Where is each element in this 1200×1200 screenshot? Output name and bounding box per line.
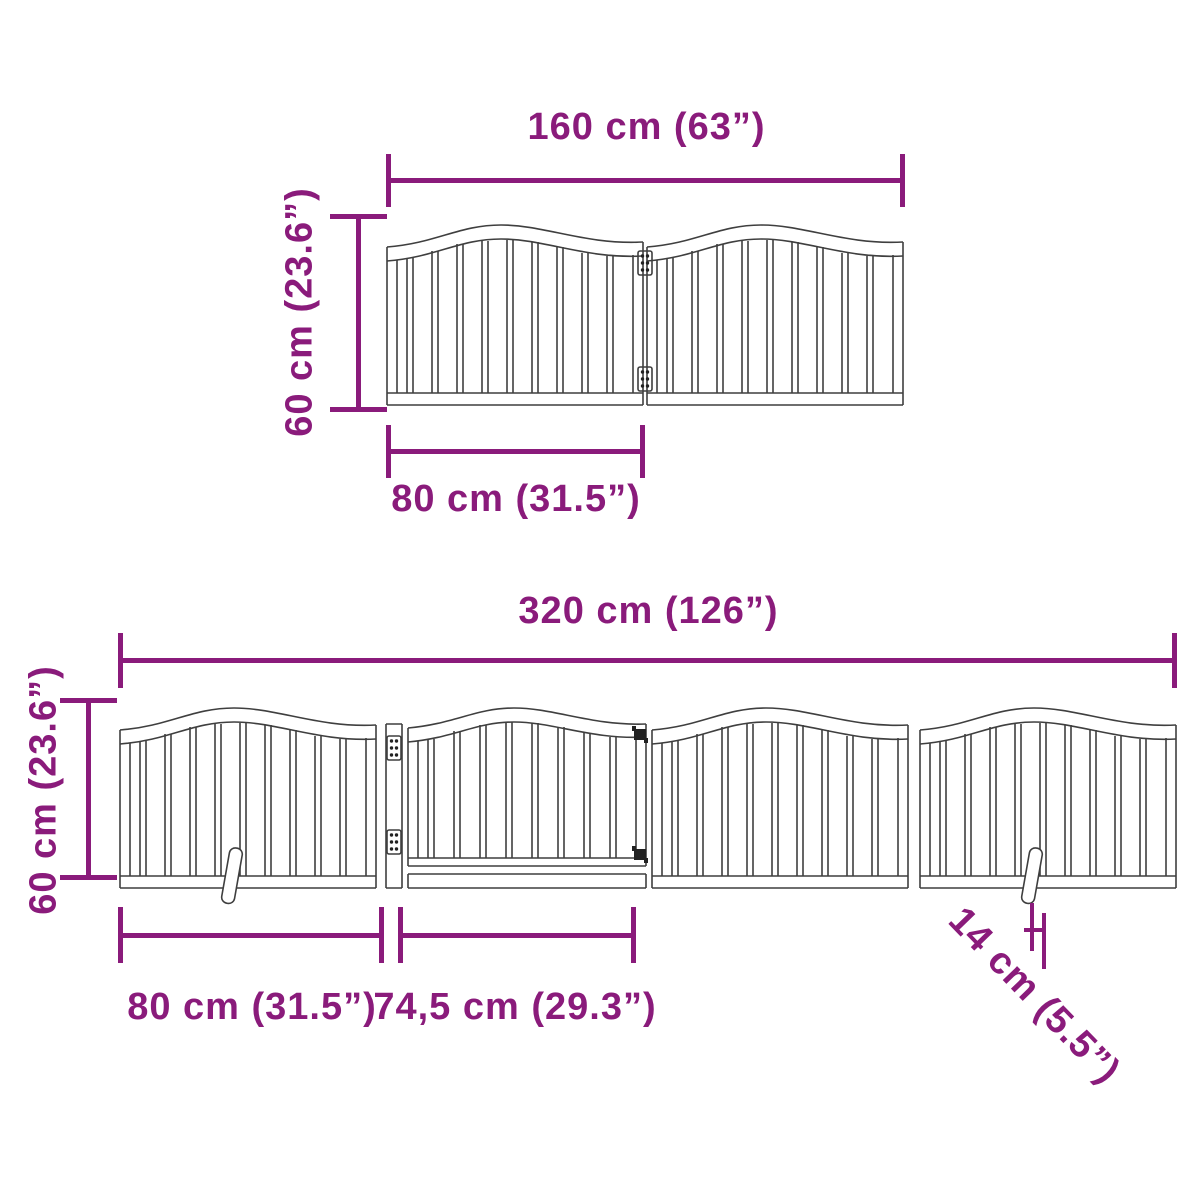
dimension-tick [398, 907, 403, 963]
gate-panel [647, 225, 903, 405]
dimension-tick [330, 214, 387, 219]
dimension-line [1024, 928, 1046, 932]
gate-panel [920, 708, 1176, 888]
dimension-tick [330, 407, 387, 412]
dimension-tick [118, 907, 123, 963]
hinge-icon [638, 251, 652, 275]
dimension-tick [1172, 633, 1177, 688]
dimension-line [86, 700, 91, 880]
multi-panel-gate-drawing [118, 700, 1180, 912]
gate-panel [387, 225, 643, 405]
gate-panel [652, 708, 908, 888]
dimension-tick [386, 154, 391, 207]
top-panel-width-label: 80 cm (31.5”) [316, 478, 716, 521]
dimension-tick [631, 907, 636, 963]
gate-panel [120, 708, 376, 888]
dimension-tick [60, 875, 117, 880]
dimension-tick [379, 907, 384, 963]
dimension-line [388, 178, 905, 183]
top-total-width-label: 160 cm (63”) [388, 106, 905, 149]
dimension-diagram: 160 cm (63”) 60 cm (23.6”) [0, 0, 1200, 1200]
two-panel-gate-drawing [385, 217, 905, 419]
bottom-total-width-label: 320 cm (126”) [120, 590, 1177, 633]
hinge-icon [638, 367, 652, 391]
dimension-line [120, 658, 1177, 663]
dimension-line [120, 933, 384, 938]
door-width-label: 74,5 cm (29.3”) [315, 986, 715, 1029]
dimension-line [356, 216, 361, 412]
dimension-tick [640, 425, 645, 478]
dimension-line [400, 933, 636, 938]
hinge-post [386, 724, 402, 888]
dimension-tick [386, 425, 391, 478]
hinge-icon [387, 736, 401, 760]
dimension-tick [118, 633, 123, 688]
dimension-tick [60, 698, 117, 703]
gate-door [408, 708, 646, 888]
hinge-icon [387, 830, 401, 854]
dimension-tick [1030, 903, 1034, 951]
dimension-tick [1042, 913, 1046, 969]
dimension-line [388, 449, 645, 454]
dimension-tick [900, 154, 905, 207]
top-height-label: 60 cm (23.6”) [279, 187, 322, 437]
